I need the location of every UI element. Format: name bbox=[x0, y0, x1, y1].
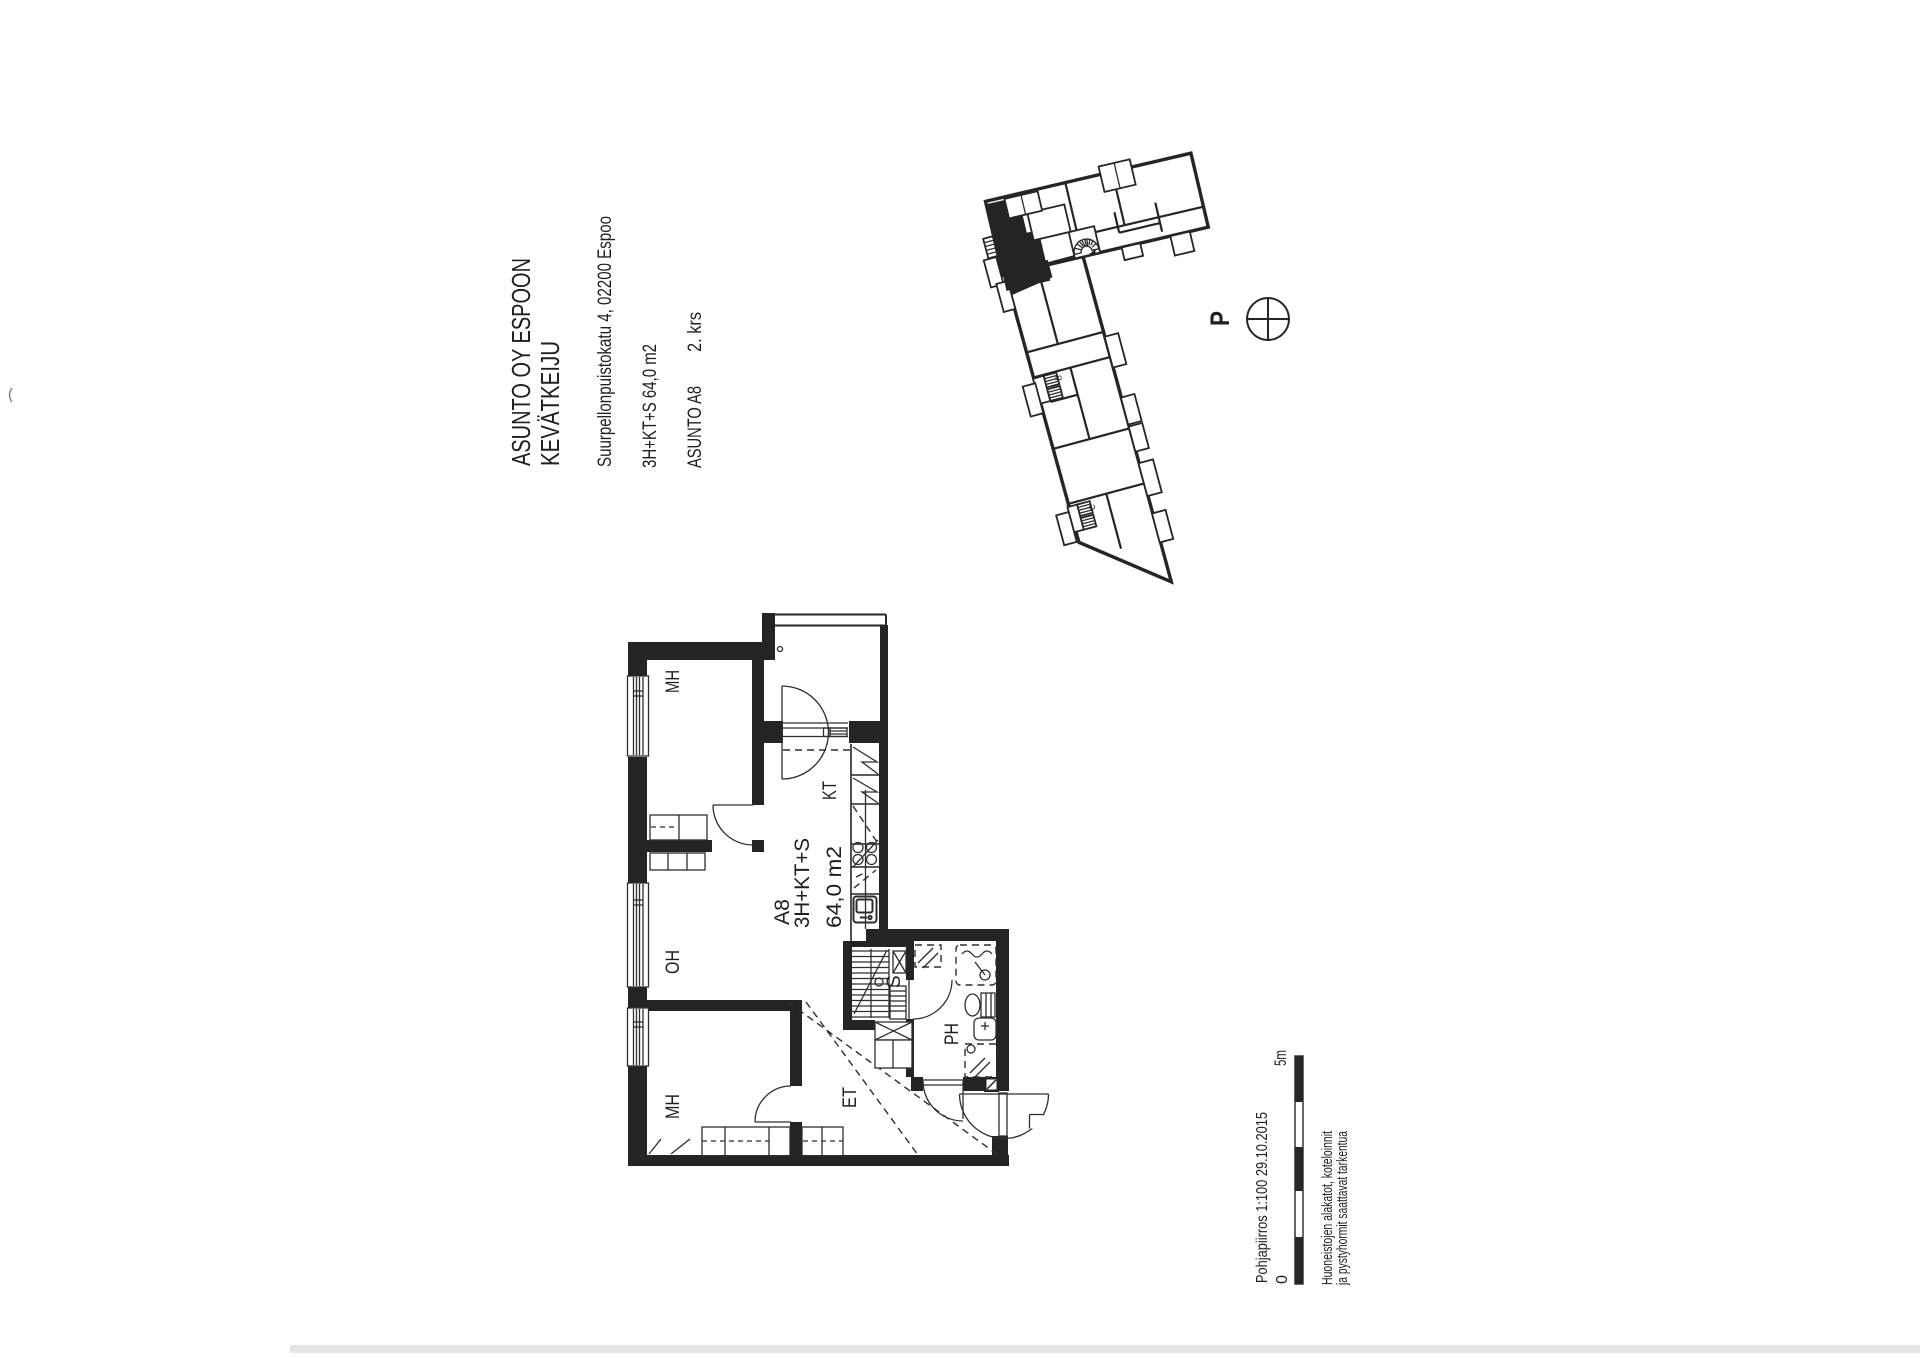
svg-text:0: 0 bbox=[1274, 1275, 1291, 1284]
svg-text:Pohjapiirros 1:100 29.10.2015: Pohjapiirros 1:100 29.10.2015 bbox=[1254, 1112, 1271, 1283]
svg-text:KEVÄTKEIJU: KEVÄTKEIJU bbox=[535, 341, 565, 466]
svg-text:OH: OH bbox=[663, 950, 684, 974]
svg-text:S: S bbox=[884, 975, 905, 988]
svg-text:64,0 m2: 64,0 m2 bbox=[823, 846, 846, 928]
svg-text:MH: MH bbox=[663, 670, 684, 693]
svg-text:MH: MH bbox=[663, 1094, 684, 1119]
svg-text:ja pystyhormit saattavat tarke: ja pystyhormit saattavat tarkentua bbox=[1334, 1131, 1351, 1286]
svg-text:3H+KT+S 64,0 m2: 3H+KT+S 64,0 m2 bbox=[640, 344, 661, 468]
svg-text:ET: ET bbox=[840, 1087, 861, 1108]
svg-text:Suurpellonpuistokatu 4, 02200: Suurpellonpuistokatu 4, 02200 Espoo bbox=[595, 216, 616, 467]
svg-text:2. krs: 2. krs bbox=[685, 312, 706, 352]
svg-text:ASUNTO OY ESPOON: ASUNTO OY ESPOON bbox=[506, 258, 536, 466]
svg-text:KT: KT bbox=[820, 781, 841, 800]
svg-text:5m: 5m bbox=[1271, 1050, 1290, 1066]
svg-text:C: C bbox=[1088, 504, 1097, 510]
svg-text:P: P bbox=[1205, 311, 1235, 326]
svg-text:3H+KT+S: 3H+KT+S bbox=[791, 838, 814, 928]
svg-text:PH: PH bbox=[942, 1023, 963, 1045]
svg-text:B: B bbox=[1054, 375, 1063, 380]
svg-text:ASUNTO A8: ASUNTO A8 bbox=[685, 386, 706, 468]
